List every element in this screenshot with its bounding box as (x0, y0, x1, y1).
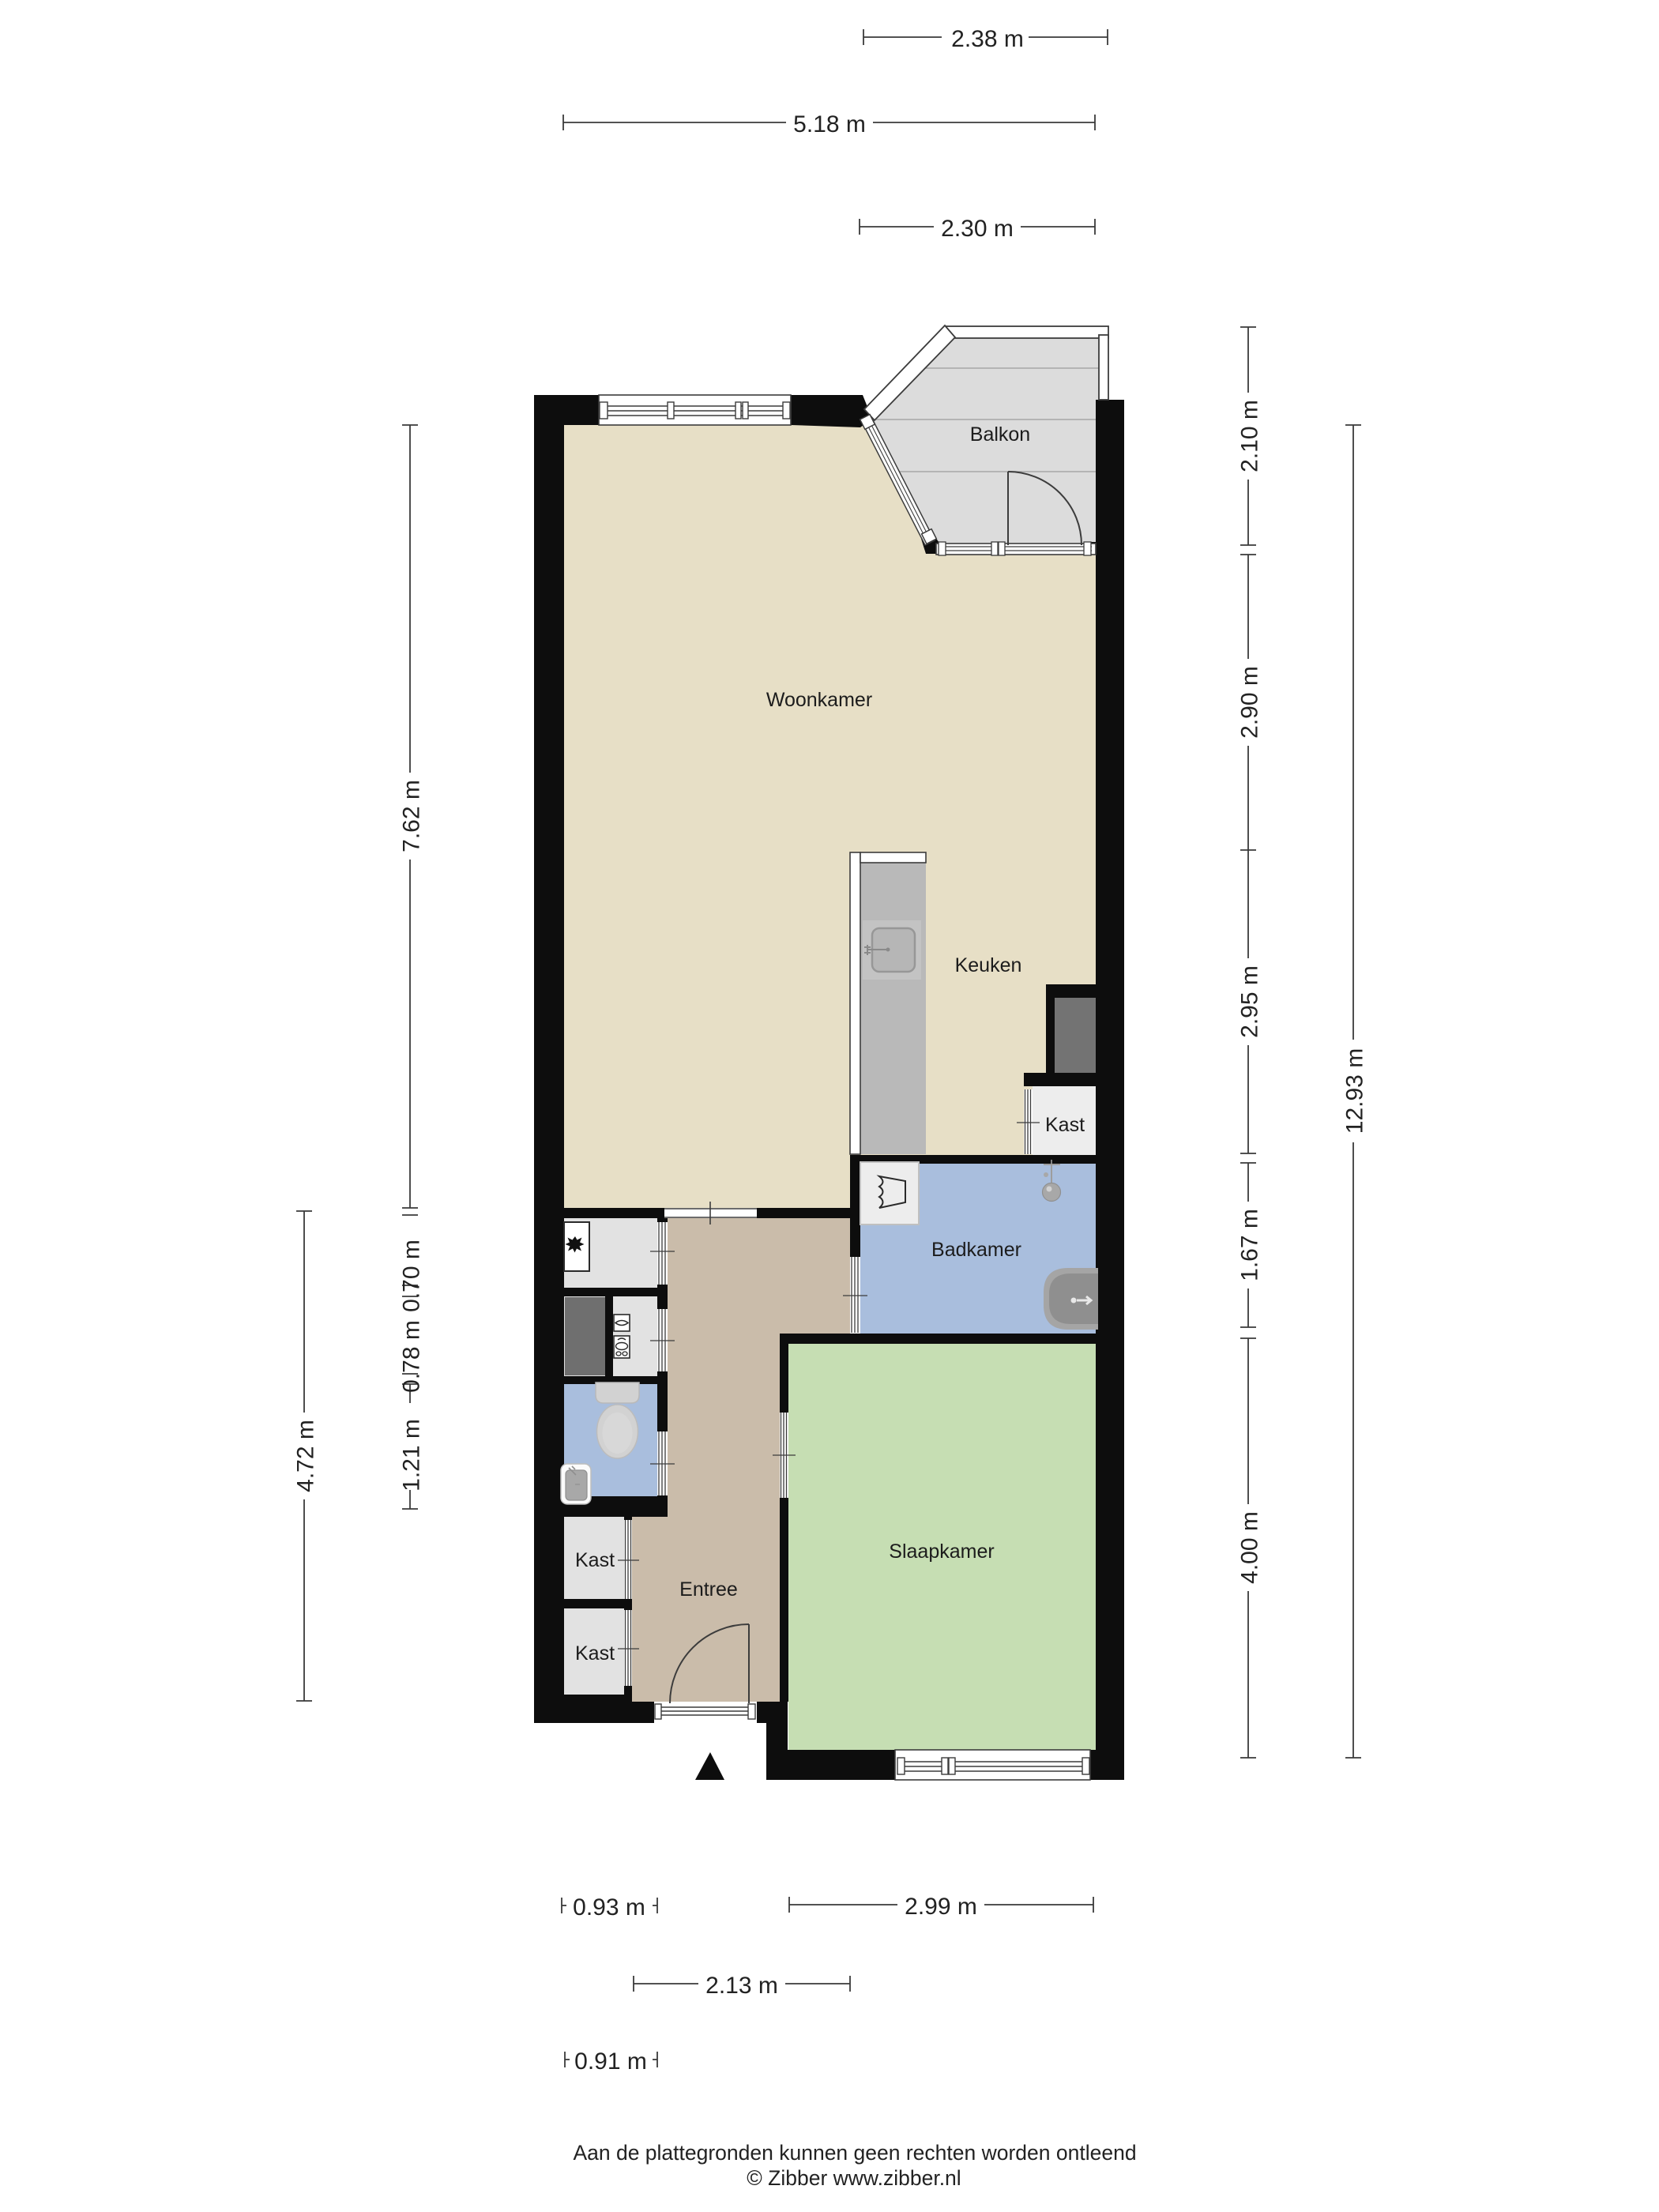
svg-text:Kast: Kast (575, 1549, 615, 1571)
svg-text:© Zibber www.zibber.nl: © Zibber www.zibber.nl (747, 2166, 961, 2190)
svg-text:Balkon: Balkon (970, 423, 1030, 446)
svg-text:1.67 m: 1.67 m (1237, 1209, 1263, 1281)
svg-text:Badkamer: Badkamer (931, 1239, 1021, 1261)
svg-text:4.72 m: 4.72 m (293, 1420, 319, 1492)
svg-text:2.99 m: 2.99 m (905, 1894, 977, 1920)
svg-text:Slaapkamer: Slaapkamer (889, 1540, 994, 1563)
svg-text:4.00 m: 4.00 m (1237, 1511, 1263, 1584)
svg-text:Kast: Kast (575, 1642, 615, 1665)
svg-text:2.30 m: 2.30 m (941, 216, 1014, 242)
svg-text:0.70 m: 0.70 m (399, 1240, 425, 1312)
svg-text:0.93 m: 0.93 m (573, 1894, 645, 1920)
svg-text:Kast: Kast (1045, 1114, 1085, 1136)
svg-text:2.90 m: 2.90 m (1237, 666, 1263, 739)
svg-text:Keuken: Keuken (955, 954, 1022, 976)
svg-text:1.21 m: 1.21 m (399, 1419, 425, 1492)
svg-text:2.10 m: 2.10 m (1237, 400, 1263, 472)
svg-text:Aan de plattegronden kunnen ge: Aan de plattegronden kunnen geen rechten… (573, 2141, 1136, 2165)
svg-text:7.62 m: 7.62 m (399, 780, 425, 852)
svg-text:Woonkamer: Woonkamer (766, 689, 872, 711)
svg-text:2.95 m: 2.95 m (1237, 965, 1263, 1038)
svg-text:2.13 m: 2.13 m (705, 1973, 778, 1999)
svg-text:2.38 m: 2.38 m (951, 26, 1024, 52)
svg-text:0.78 m: 0.78 m (399, 1320, 425, 1393)
svg-text:5.18 m: 5.18 m (793, 111, 866, 137)
svg-text:12.93 m: 12.93 m (1342, 1048, 1368, 1134)
svg-text:Entree: Entree (679, 1578, 738, 1601)
svg-text:0.91 m: 0.91 m (574, 2048, 647, 2075)
